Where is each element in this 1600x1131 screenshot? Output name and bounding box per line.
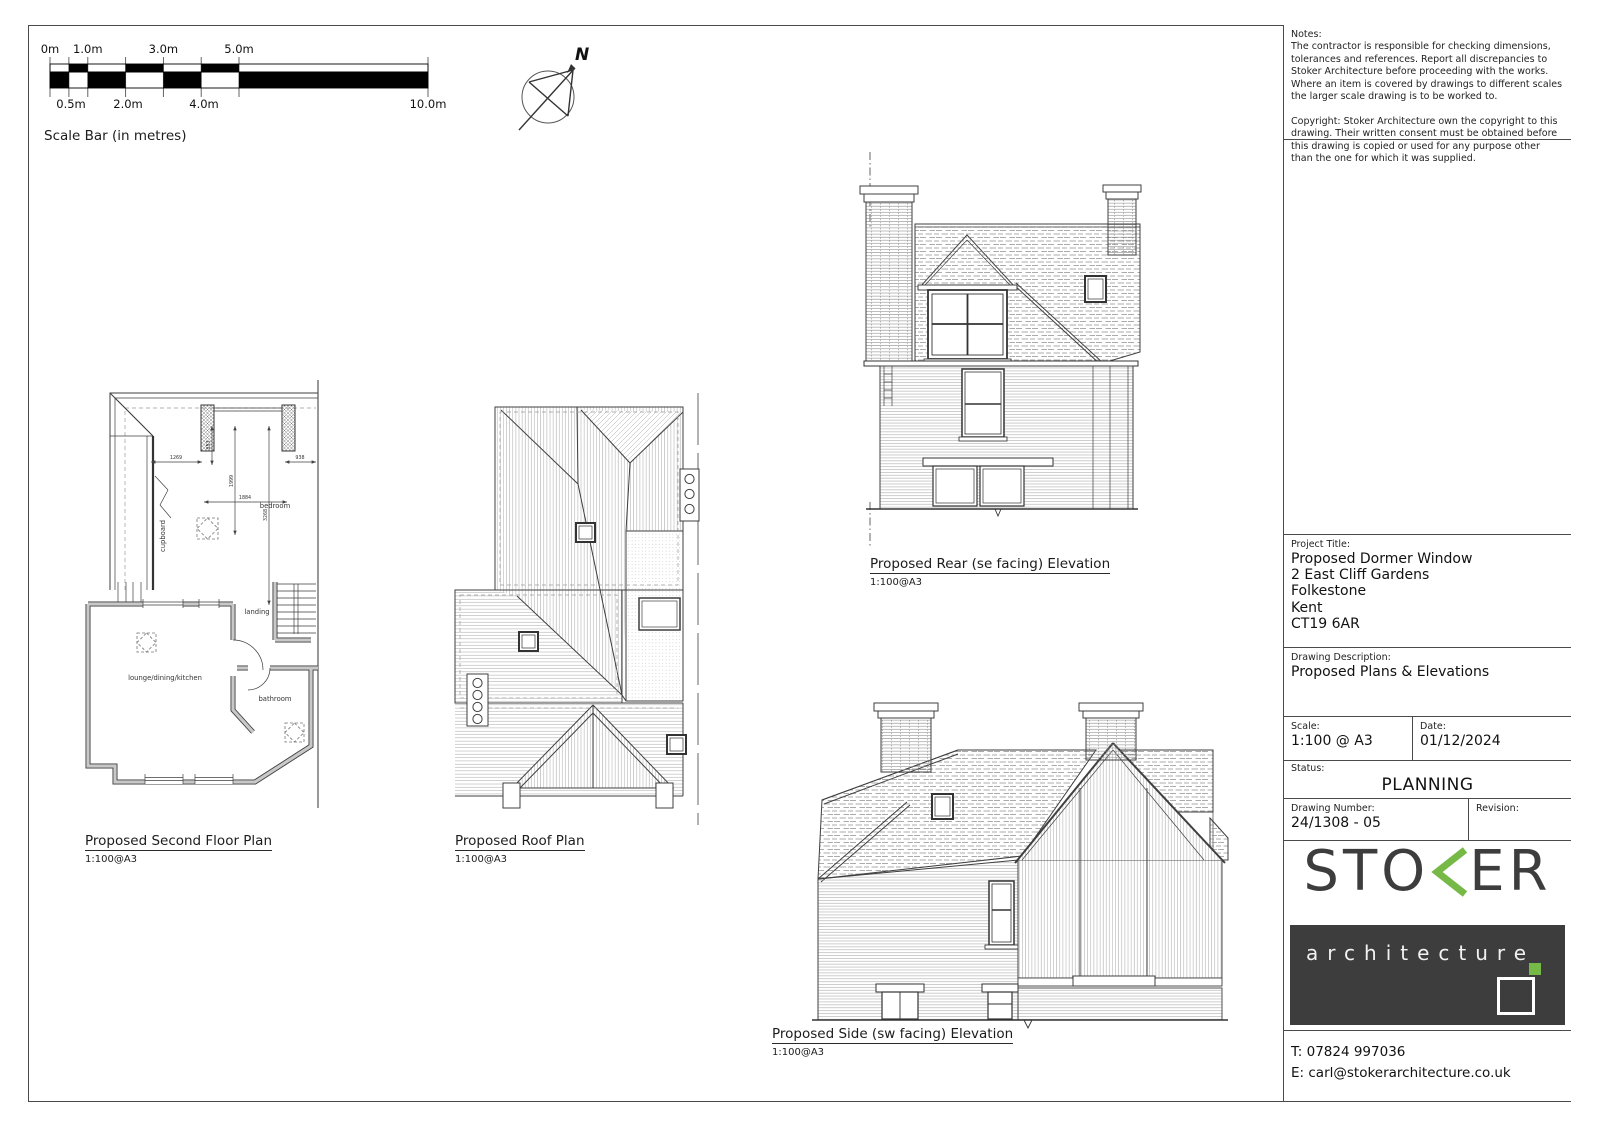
stoker-logo: STO ER architecture [1284, 841, 1571, 1031]
floor-plan-drawing: 1269 938 853 1999 3268 1884 cupboard bed… [85, 378, 325, 813]
revision-label: Revision: [1476, 803, 1564, 814]
scale-bar: 0m 1.0m 3.0m 5.0m 0.5m 2.0m 4.0m 10.0m [40, 45, 440, 111]
drawing-description-value: Proposed Plans & Elevations [1291, 664, 1564, 680]
status-section: Status: PLANNING [1284, 761, 1571, 799]
side-elevation-scale: 1:100@A3 [772, 1047, 1013, 1058]
scale-date-row: Scale: 1:100 @ A3 Date: 01/12/2024 [1284, 717, 1571, 761]
contact-email: E: carl@stokerarchitecture.co.uk [1291, 1063, 1564, 1084]
side-elevation-caption: Proposed Side (sw facing) Elevation 1:10… [772, 1023, 1013, 1058]
scale-label-4m: 4.0m [189, 97, 219, 111]
side-elevation-drawing [770, 638, 1232, 1026]
dim-1269: 1269 [170, 455, 182, 461]
revision-cell: Revision: [1469, 799, 1571, 840]
project-line-3: Folkestone [1291, 583, 1564, 599]
dim-3268: 3268 [263, 509, 269, 521]
room-label-lounge: lounge/dining/kitchen [128, 674, 202, 682]
notes-paragraph-1: The contractor is responsible for checki… [1291, 41, 1564, 79]
room-label-bathroom: bathroom [258, 695, 291, 703]
scale-label-2m: 2.0m [113, 97, 143, 111]
floor-plan-scale: 1:100@A3 [85, 854, 272, 865]
date-cell: Date: 01/12/2024 [1413, 717, 1571, 760]
number-revision-row: Drawing Number: 24/1308 - 05 Revision: [1284, 799, 1571, 841]
scale-bar-title: Scale Bar (in metres) [44, 128, 186, 144]
roof-plan-drawing [440, 393, 702, 825]
north-label: N [575, 45, 589, 65]
date-value: 01/12/2024 [1420, 733, 1564, 749]
dim-853: 853 [206, 440, 212, 449]
notes-section: Notes: The contractor is responsible for… [1284, 25, 1571, 140]
scale-label-10m: 10.0m [410, 97, 447, 111]
roof-plan-caption: Proposed Roof Plan 1:100@A3 [455, 830, 585, 865]
title-block: Notes: The contractor is responsible for… [1283, 25, 1571, 1101]
logo-square-icon [1497, 977, 1535, 1015]
dim-1999: 1999 [229, 475, 235, 487]
side-elevation-title: Proposed Side (sw facing) Elevation [772, 1026, 1013, 1044]
rear-elevation-caption: Proposed Rear (se facing) Elevation 1:10… [870, 553, 1110, 588]
logo-text-left: STO [1303, 839, 1429, 904]
drawing-description-label: Drawing Description: [1291, 652, 1564, 663]
date-label: Date: [1420, 721, 1564, 732]
north-arrow: N [505, 42, 595, 138]
scale-label-0m: 0m [41, 42, 60, 56]
logo-green-square-icon [1529, 963, 1541, 975]
rear-elevation-title: Proposed Rear (se facing) Elevation [870, 556, 1110, 574]
dim-1884: 1884 [239, 495, 251, 501]
title-block-spacer [1284, 140, 1571, 535]
rear-elevation-scale: 1:100@A3 [870, 577, 1110, 588]
scale-label-05m: 0.5m [56, 97, 86, 111]
drawing-number-value: 24/1308 - 05 [1291, 815, 1461, 831]
project-line-2: 2 East Cliff Gardens [1291, 567, 1564, 583]
room-label-cupboard: cupboard [159, 520, 167, 552]
contact-phone: T: 07824 997036 [1291, 1042, 1564, 1063]
scale-cell: Scale: 1:100 @ A3 [1284, 717, 1413, 760]
logo-k-chevron-icon [1431, 847, 1467, 897]
project-line-1: Proposed Dormer Window [1291, 551, 1564, 567]
roof-plan-scale: 1:100@A3 [455, 854, 585, 865]
project-title-label: Project Title: [1291, 539, 1564, 550]
logo-text-right: ER [1469, 839, 1551, 904]
project-line-4: Kent [1291, 600, 1564, 616]
roof-plan-title: Proposed Roof Plan [455, 833, 585, 851]
logo-architecture-text: architecture [1306, 941, 1535, 965]
status-value: PLANNING [1291, 775, 1564, 795]
drawing-description-section: Drawing Description: Proposed Plans & El… [1284, 648, 1571, 717]
scale-label-1m: 1.0m [73, 42, 103, 56]
status-label: Status: [1291, 763, 1564, 774]
floor-plan-caption: Proposed Second Floor Plan 1:100@A3 [85, 830, 272, 865]
scale-value: 1:100 @ A3 [1291, 733, 1405, 749]
scale-label-5m: 5.0m [224, 42, 254, 56]
contact-section: T: 07824 997036 E: carl@stokerarchitectu… [1284, 1031, 1571, 1095]
drawing-number-label: Drawing Number: [1291, 803, 1461, 814]
dim-938: 938 [295, 455, 304, 461]
room-label-landing: landing [244, 608, 269, 616]
architectural-drawing-sheet: { "colors": {"accent_green": "#76b947", … [0, 0, 1600, 1131]
logo-wordmark: STO ER [1292, 839, 1563, 904]
rear-elevation-drawing [840, 152, 1142, 548]
drawing-number-cell: Drawing Number: 24/1308 - 05 [1284, 799, 1469, 840]
notes-paragraph-2: Where an item is covered by drawings to … [1291, 79, 1564, 104]
scale-label: Scale: [1291, 721, 1405, 732]
scale-label-3m: 3.0m [149, 42, 179, 56]
project-title-section: Project Title: Proposed Dormer Window 2 … [1284, 535, 1571, 648]
project-line-5: CT19 6AR [1291, 616, 1564, 632]
floor-plan-title: Proposed Second Floor Plan [85, 833, 272, 851]
logo-architecture-bar: architecture [1290, 925, 1565, 1025]
room-label-bedroom: bedroom [260, 502, 291, 510]
notes-label: Notes: [1291, 29, 1564, 40]
